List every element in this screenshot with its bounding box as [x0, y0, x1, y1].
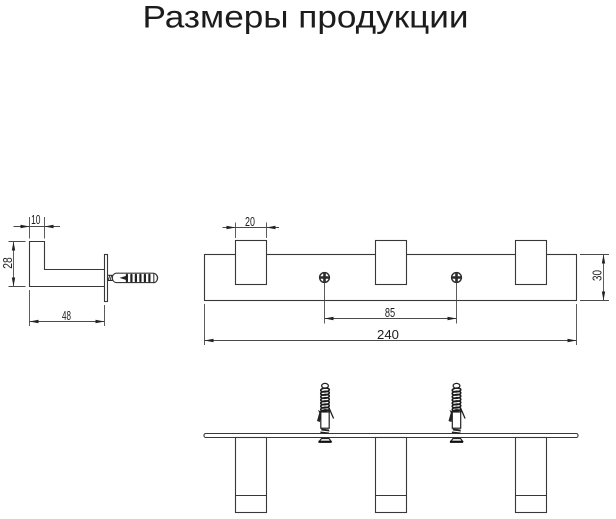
svg-text:28: 28 — [0, 257, 15, 269]
svg-text:85: 85 — [385, 305, 395, 320]
svg-text:30: 30 — [590, 270, 605, 281]
svg-text:240: 240 — [377, 327, 399, 342]
svg-text:Размеры продукции: Размеры продукции — [143, 0, 469, 35]
svg-text:10: 10 — [31, 212, 40, 227]
svg-text:48: 48 — [62, 308, 71, 323]
svg-text:20: 20 — [245, 214, 255, 229]
